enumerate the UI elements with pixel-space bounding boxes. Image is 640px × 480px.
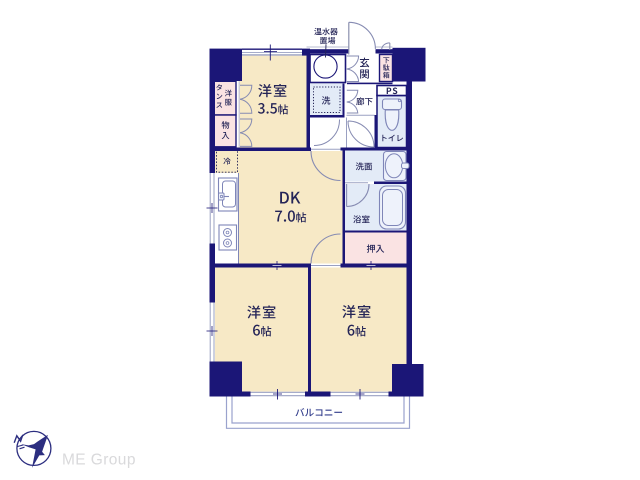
svg-text:ME Group: ME Group [62,452,136,469]
